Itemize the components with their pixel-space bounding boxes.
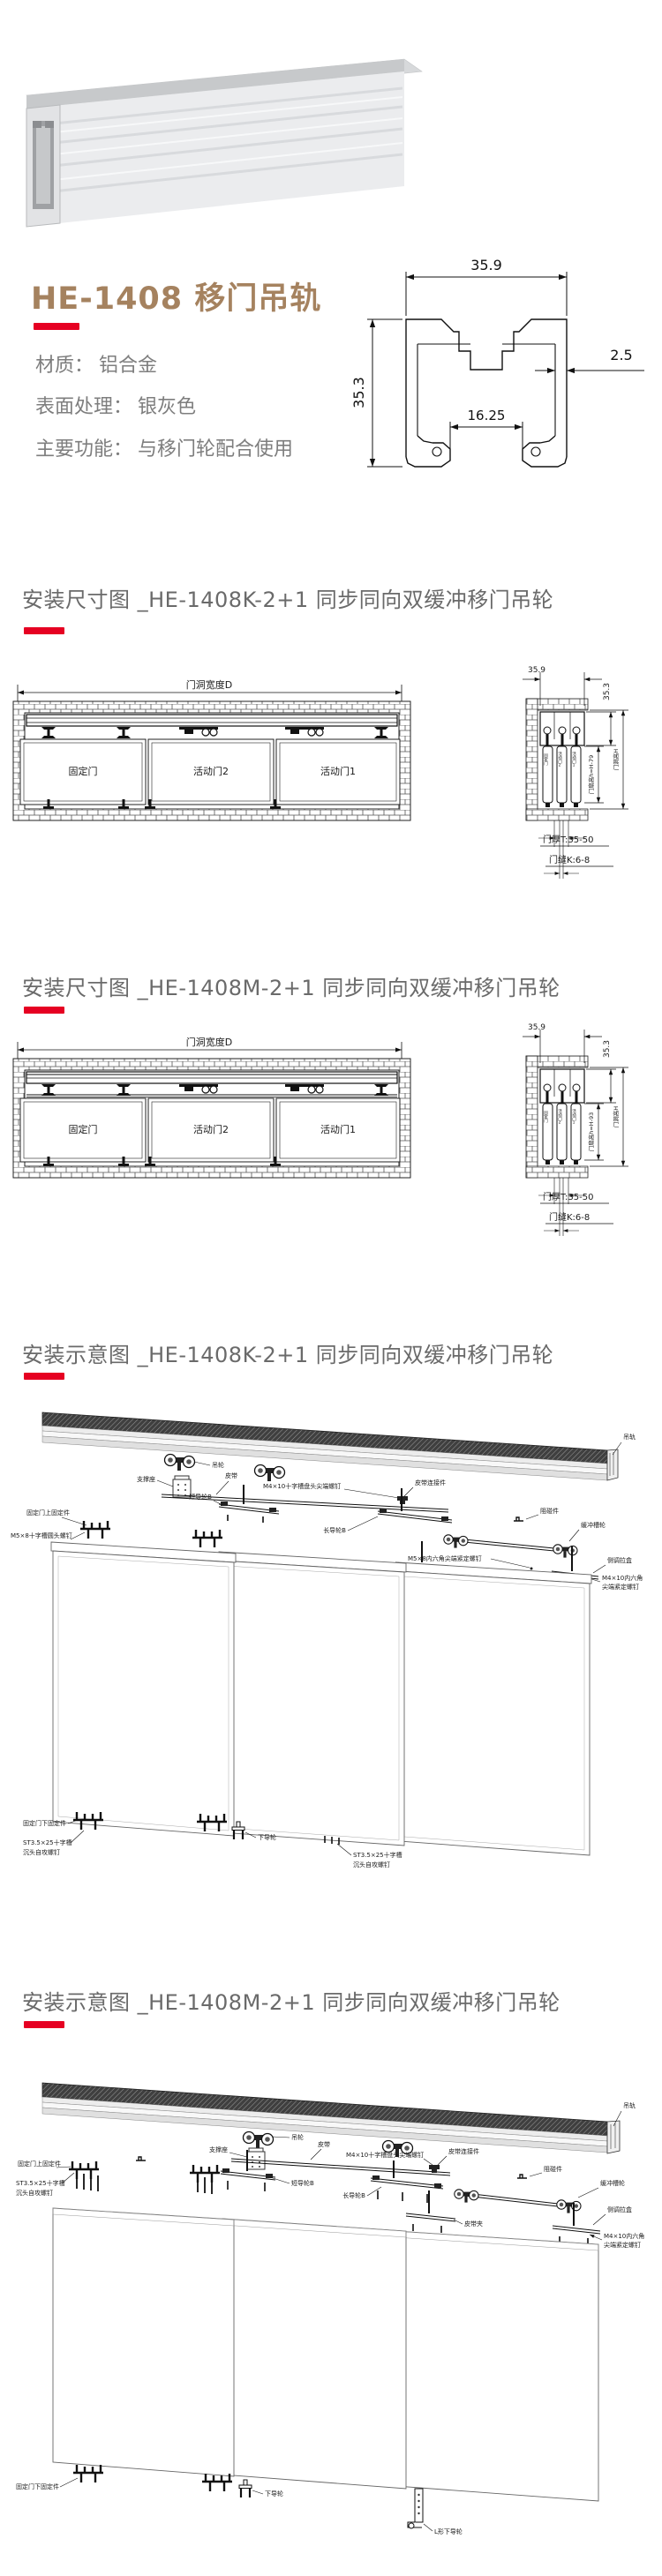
slab-move2-label: 活动门2 (558, 1108, 562, 1126)
section-heading-exp-m: 安装示意图 _HE-1408M-2+1 同步同向双缓冲移门吊轮 (22, 1985, 560, 2016)
screw-set-m4-label-1: M4×10内六角 (602, 1574, 643, 1582)
section-heading-dim-k: 安装尺寸图 _HE-1408K-2+1 同步同向双缓冲移门吊轮 (22, 582, 553, 613)
section-bar-3 (24, 1373, 64, 1380)
door-move2-label: 活动门2 (193, 1123, 229, 1135)
support-label: 支撑座 (209, 2145, 228, 2153)
opening-width-label: 门洞宽度D (186, 1036, 232, 1048)
support-seat (247, 2148, 265, 2169)
screw-st-left-label-1: ST3.5×25十字槽 (16, 2179, 65, 2187)
support-seat (173, 1476, 191, 1497)
dim-drawing-m: 门洞宽度D 固定门 活动门2 活动门1 (0, 1019, 662, 1292)
stopper-part (517, 2175, 527, 2178)
spec-material-label: 材质： (35, 355, 94, 377)
set-screw-dot (530, 1568, 533, 1570)
side-box-label: 侧调拉盒 (607, 2205, 632, 2213)
top-fixing-bracket-long (69, 2161, 99, 2191)
spec-material-value: 铝合金 (99, 355, 157, 377)
thickness-gap-lines (538, 1178, 584, 1236)
screw-set-m4-label-2: 尖端紧定螺钉 (604, 2241, 641, 2249)
top-fixing-bracket (80, 1521, 110, 1539)
guide-long-label: 长导轮B (323, 1526, 346, 1534)
screw-st-label-2: 沉头自攻螺钉 (23, 1848, 60, 1856)
screw-st-right-label-1: ST3.5×25十字槽 (353, 1851, 402, 1859)
dim-slot-label: 16.25 (468, 408, 506, 423)
screw-st-left-label-2: 沉头自攻螺钉 (16, 2189, 53, 2197)
dim-width-group (406, 272, 567, 316)
section-track-width: 35.9 (528, 1023, 545, 1032)
stopper-part (514, 1517, 523, 1521)
slab-fixed-label: 固定门 (544, 1111, 548, 1124)
dim-width-label: 35.9 (470, 257, 502, 273)
section-track-width: 35.9 (528, 666, 545, 675)
screw-set-m4-label-2: 尖端紧定螺钉 (602, 1583, 639, 1591)
spec-surface-label: 表面处理： (35, 396, 132, 418)
door-panel-1 (51, 1542, 236, 1836)
section-bar-1 (24, 627, 64, 634)
door-panel-3 (395, 2231, 598, 2501)
track-rail-3d (42, 1412, 618, 1480)
slab-fixed-label: 固定门 (544, 753, 548, 767)
top-fixing-bracket-long (190, 2165, 220, 2194)
door-panel-2 (222, 2219, 406, 2489)
screw-st-label-1: ST3.5×25十字槽 (23, 1838, 72, 1846)
belt-label: 皮带 (318, 2140, 330, 2148)
wheel-label: 吊轮 (212, 1461, 224, 1469)
spec-function-label: 主要功能： (35, 438, 132, 461)
door-panel-1 (53, 2208, 234, 2476)
guide-short-label: 短导轮B (291, 2179, 314, 2187)
buffer-assembly (444, 1535, 577, 1558)
section-bar-2 (24, 1007, 64, 1014)
guide-long-label: 长导轮B (342, 2191, 365, 2199)
side-box-label: 侧调拉盒 (607, 1556, 632, 1564)
gap-label: 门缝K:6-8 (549, 854, 590, 865)
dim-slot-group (450, 422, 523, 461)
door-fixed-label: 固定门 (69, 765, 98, 777)
top-fixing-bracket (192, 1530, 222, 1547)
screw-set-m5-label: M5×8内六角尖端紧定螺钉 (408, 1554, 482, 1562)
door-panel-3 (397, 1562, 591, 1855)
opening-width-label: 门洞宽度D (186, 678, 232, 691)
long-guide (378, 1488, 452, 1523)
buffer-wheel-label: 缓冲槽轮 (581, 1521, 606, 1529)
spec-surface: 表面处理：银灰色 (35, 391, 196, 419)
thickness-label: 门厚T:35-50 (543, 1191, 593, 1202)
top-fix-label: 固定门上固定件 (18, 2160, 61, 2168)
belt-clip-part (406, 2190, 455, 2233)
bottom-fix-label: 固定门下固定件 (16, 2482, 59, 2490)
screw-pan-label: M4×10十字槽盘头尖端螺钉 (346, 2151, 424, 2159)
screw-pan-label: M4×10十字槽盘头尖端螺钉 (263, 1482, 341, 1490)
bottom-guide-wheel (239, 2480, 252, 2497)
screw-st-right-label-2: 沉头自攻螺钉 (353, 1861, 390, 1868)
belt-conn-label: 皮带连接件 (415, 1479, 446, 1486)
thickness-gap-lines (538, 820, 584, 879)
opening-height-label: 门洞高H (612, 1106, 620, 1128)
cross-section-drawing: 35.9 35.3 2.5 16.25 (353, 249, 662, 500)
track-label: 吊轨 (623, 2101, 636, 2109)
spec-function-value: 与移门轮配合使用 (138, 438, 293, 461)
wheel-label: 吊轮 (291, 2133, 304, 2141)
screw-set-m4-label-1: M4×10内六角 (604, 2232, 644, 2240)
gap-label: 门缝K:6-8 (549, 1211, 590, 1223)
track-label: 吊轨 (623, 1433, 636, 1441)
leaf-height-label: 门扇高h=H-93 (587, 1112, 595, 1152)
stopper-label: 阻碰件 (544, 2165, 562, 2173)
track-bar (26, 715, 397, 726)
spec-material: 材质：铝合金 (35, 349, 157, 378)
guide-bottom-label: 下导轮 (265, 2490, 283, 2497)
dim-drawing-k: 门洞宽度D 固定门 活动门2 活动门1 (0, 662, 662, 935)
section-track-height: 35.3 (603, 683, 612, 700)
belt-clip-label: 皮带夹 (464, 2220, 483, 2228)
short-guide (219, 1485, 279, 1523)
spec-surface-value: 银灰色 (138, 396, 196, 418)
door-move1-label: 活动门1 (320, 1123, 356, 1135)
stopper-label: 阻碰件 (540, 1507, 559, 1515)
belt-conn-label: 皮带连接件 (448, 2147, 479, 2155)
small-clamp-part (136, 2157, 146, 2160)
top-fix-label: 固定门上固定件 (26, 1509, 70, 1516)
slab-move2-label: 活动门2 (558, 751, 562, 768)
hanger-wheel-icon (165, 1455, 195, 1471)
section-bar-4 (24, 2021, 64, 2028)
guide-short-label: 短导轮B (189, 1493, 212, 1501)
dim-height-label: 35.3 (353, 377, 367, 408)
product-photo (9, 13, 424, 251)
door-fixed-label: 固定门 (69, 1123, 98, 1135)
hanger-wheel-icon (244, 2132, 274, 2149)
title-accent-bar (34, 323, 79, 330)
thickness-label: 门厚T:35-50 (543, 834, 593, 845)
dim-height-group (367, 319, 402, 467)
exploded-drawing-k: 吊轨 吊轮 支撑座 皮带 M4×10十字槽盘头尖端螺钉 皮带连接件 短导轮B 固… (0, 1407, 662, 1950)
exploded-drawing-m: 吊轨 吊轮 支撑座 皮带 M4×10十字槽盘头尖端螺钉 皮带连接件 固定门上固定… (0, 2078, 662, 2576)
profile-outline (406, 319, 567, 467)
section-track-height: 35.3 (603, 1040, 612, 1058)
bottom-fix-label: 固定门下固定件 (23, 1819, 66, 1827)
slab-move1-label: 活动门1 (572, 1108, 576, 1126)
leaf-height-label: 门扇高h=H-79 (587, 755, 595, 795)
door-move2-label: 活动门2 (193, 765, 229, 777)
section-heading-exp-k: 安装示意图 _HE-1408K-2+1 同步同向双缓冲移门吊轮 (22, 1337, 553, 1368)
screw-round-label: M5×8十字槽圆头螺钉 (11, 1531, 72, 1539)
track-rail-3d (42, 2083, 620, 2153)
belt-label: 皮带 (225, 1471, 237, 1479)
profile-inner-lines (418, 344, 555, 456)
buffer-assembly (455, 2190, 581, 2213)
guide-bottom-l-label: L形下导轮 (434, 2527, 463, 2535)
support-label: 支撑座 (137, 1475, 155, 1483)
slab-move1-label: 活动门1 (572, 751, 576, 768)
door-move1-label: 活动门1 (320, 765, 356, 777)
guide-bottom-label: 下导轮 (258, 1833, 276, 1841)
hanger-wheel-icon (255, 1465, 285, 1482)
l-shaped-bottom-guide (408, 2489, 423, 2528)
opening-height-label: 门洞高H (612, 749, 620, 771)
dim-wall-label: 2.5 (610, 347, 632, 363)
product-page: HE-1408 移门吊轨 材质：铝合金 表面处理：银灰色 主要功能：与移门轮配合… (0, 0, 662, 2576)
short-guide (221, 2150, 275, 2191)
buffer-wheel-label: 缓冲槽轮 (600, 2179, 625, 2187)
section-heading-dim-m: 安装尺寸图 _HE-1408M-2+1 同步同向双缓冲移门吊轮 (22, 970, 560, 1001)
door-panel-2 (219, 1552, 406, 1846)
page-title: HE-1408 移门吊轨 (31, 273, 321, 318)
spec-function: 主要功能：与移门轮配合使用 (35, 433, 293, 461)
